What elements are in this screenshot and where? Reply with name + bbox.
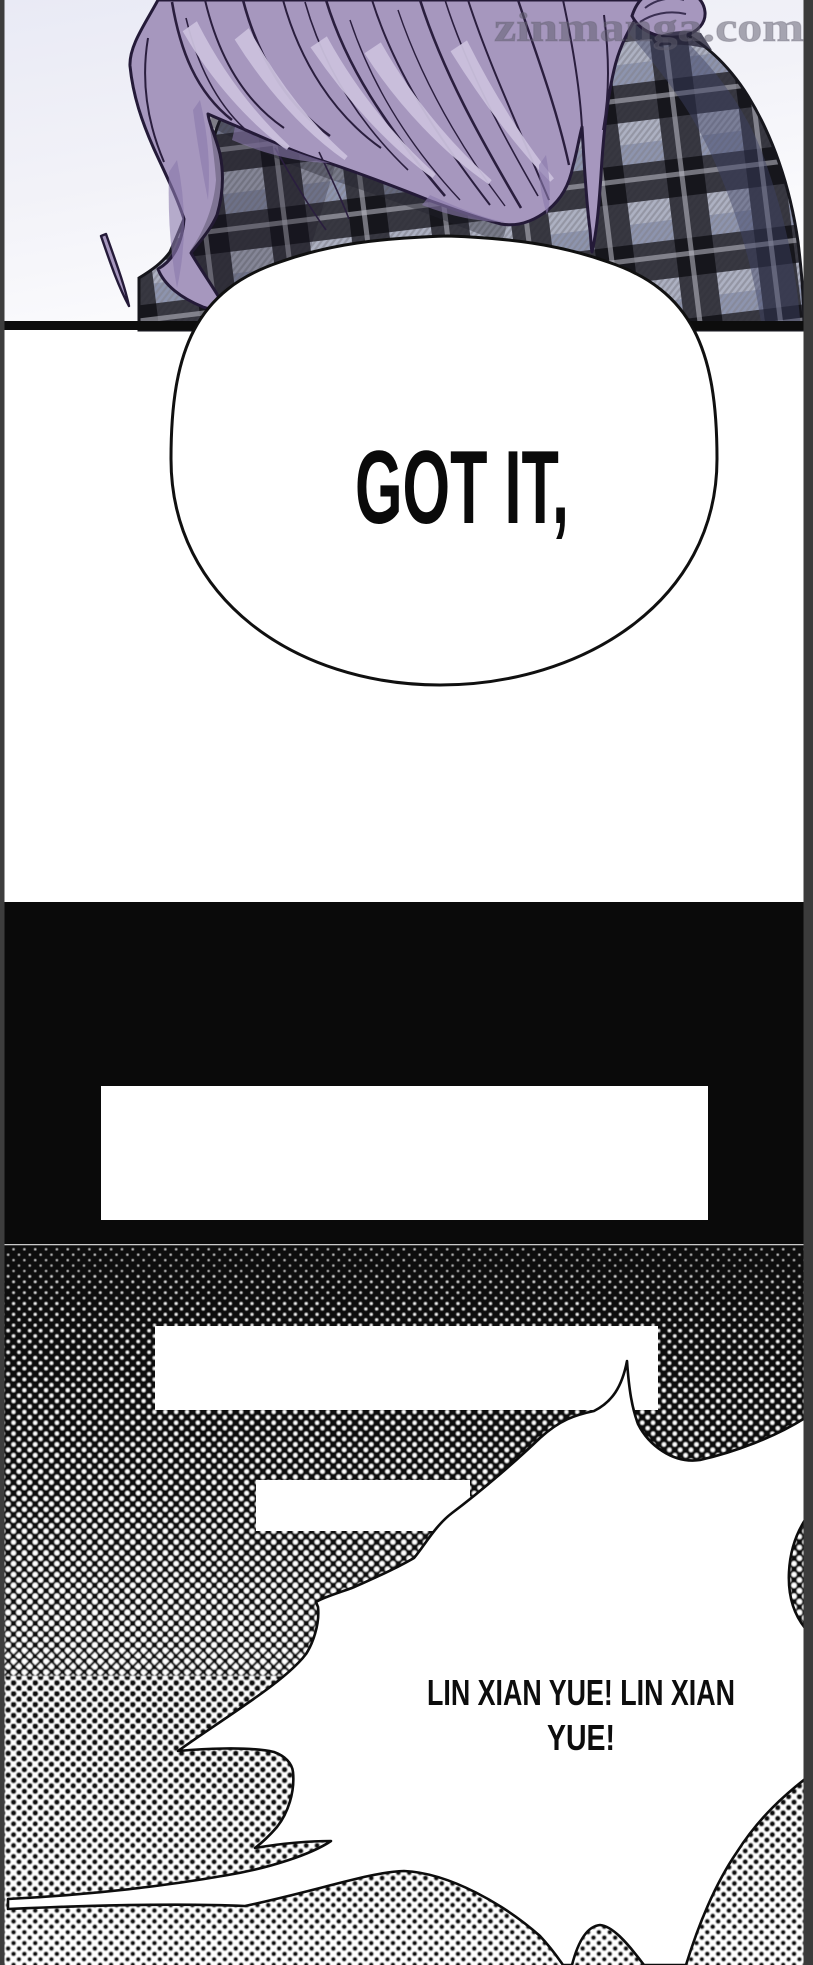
svg-text:LIN XIAN YUE! LIN XIAN: LIN XIAN YUE! LIN XIAN bbox=[427, 1672, 735, 1713]
svg-text:YUE!: YUE! bbox=[547, 1717, 615, 1758]
svg-text:zinmanga.com: zinmanga.com bbox=[494, 4, 804, 50]
svg-text:GOT IT,: GOT IT, bbox=[355, 430, 569, 546]
